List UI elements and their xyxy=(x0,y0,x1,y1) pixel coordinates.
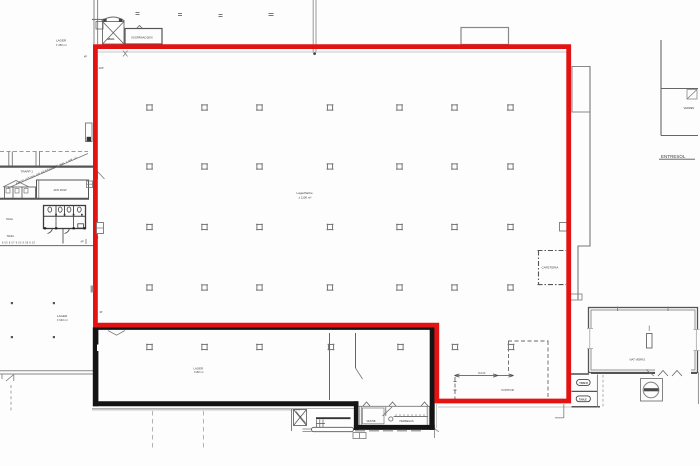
svg-text:LAGER: LAGER xyxy=(194,367,203,371)
svg-text:VOORRAAD BOX: VOORRAAD BOX xyxy=(131,36,153,40)
svg-text:± 640 m²: ± 640 m² xyxy=(57,318,68,322)
svg-text:Lagerfläche: Lagerfläche xyxy=(297,191,313,195)
svg-text:KONTOR: KONTOR xyxy=(502,388,514,392)
svg-text:4P: 4P xyxy=(100,312,103,314)
svg-text:±12.00: ±12.00 xyxy=(478,372,486,375)
svg-text:TRAPP 1: TRAPP 1 xyxy=(21,170,34,174)
svg-text:LAGER: LAGER xyxy=(56,39,67,43)
svg-text:NAT VERKS: NAT VERKS xyxy=(630,358,646,362)
svg-text:SAAL: SAAL xyxy=(6,217,14,221)
svg-text:LAGER: LAGER xyxy=(57,314,68,318)
svg-text:± 450 m²: ± 450 m² xyxy=(56,43,67,47)
svg-text:ADP: ADP xyxy=(99,67,104,70)
svg-text:TANIA: TANIA xyxy=(7,234,15,238)
svg-text:AP: AP xyxy=(81,241,85,244)
svg-text:HERREGAS: HERREGAS xyxy=(400,420,414,423)
svg-text:MAG: MAG xyxy=(108,37,116,41)
svg-text:TRAFO: TRAFO xyxy=(579,382,588,385)
svg-text:4P: 4P xyxy=(84,56,87,59)
svg-text:VERRES: VERRES xyxy=(684,106,695,110)
svg-text:AFD RUW: AFD RUW xyxy=(54,188,67,192)
svg-text:ENTRESOL: ENTRESOL xyxy=(661,154,686,159)
svg-text:±160 m²: ±160 m² xyxy=(194,370,204,374)
svg-text:± 1100 m²: ± 1100 m² xyxy=(299,196,312,200)
svg-text:CAFETERIA: CAFETERIA xyxy=(542,266,559,270)
svg-text:B: B xyxy=(97,238,99,240)
svg-text:TAVLE: TAVLE xyxy=(579,398,587,401)
svg-text:8.05 8.07 8.03 8.09 8.02: 8.05 8.07 8.03 8.09 8.02 xyxy=(2,243,36,245)
svg-text:VESTIB: VESTIB xyxy=(367,420,376,423)
